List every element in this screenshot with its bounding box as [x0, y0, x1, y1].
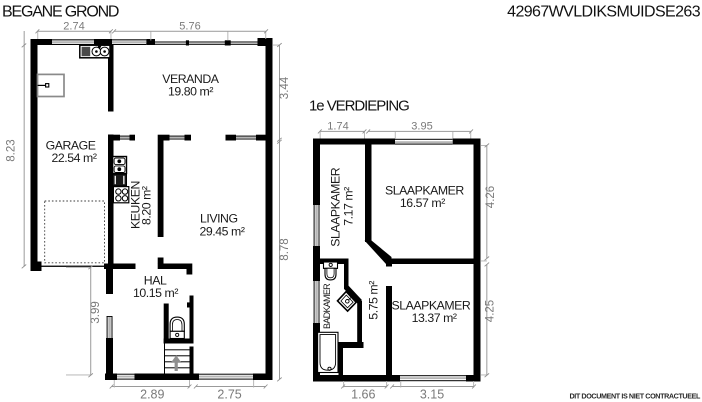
svg-text:BEGANE GROND: BEGANE GROND — [2, 3, 119, 20]
svg-text:8.20 m²: 8.20 m² — [140, 186, 154, 225]
svg-text:22.54 m²: 22.54 m² — [52, 151, 97, 165]
svg-text:5.76: 5.76 — [179, 20, 200, 32]
svg-text:1e VERDIEPING: 1e VERDIEPING — [309, 97, 409, 114]
svg-text:1.74: 1.74 — [327, 120, 348, 132]
svg-text:8.23: 8.23 — [6, 139, 18, 161]
svg-text:3.44: 3.44 — [279, 76, 291, 99]
svg-text:19.80 m²: 19.80 m² — [168, 85, 213, 99]
svg-text:2.75: 2.75 — [217, 387, 241, 401]
svg-text:1.66: 1.66 — [351, 387, 375, 401]
svg-text:13.37 m²: 13.37 m² — [412, 311, 457, 325]
svg-text:29.45 m²: 29.45 m² — [200, 224, 245, 238]
svg-text:3.15: 3.15 — [420, 387, 444, 401]
svg-text:BADKAMER: BADKAMER — [322, 283, 332, 329]
svg-text:4.26: 4.26 — [485, 186, 497, 208]
svg-text:LIVING: LIVING — [200, 211, 238, 225]
svg-text:4.25: 4.25 — [485, 300, 497, 322]
svg-text:8.78: 8.78 — [279, 238, 291, 260]
svg-text:7.17 m²: 7.17 m² — [341, 187, 355, 226]
svg-text:5.75 m²: 5.75 m² — [367, 281, 381, 320]
svg-text:10.15 m²: 10.15 m² — [133, 286, 178, 300]
svg-text:3.99: 3.99 — [90, 301, 102, 323]
svg-text:42967WVLDIKSMUIDSE263: 42967WVLDIKSMUIDSE263 — [507, 4, 701, 21]
svg-text:3.95: 3.95 — [411, 120, 432, 132]
svg-text:2.89: 2.89 — [140, 387, 164, 401]
svg-text:2.74: 2.74 — [63, 20, 84, 32]
svg-text:DIT DOCUMENT IS NIET CONTRACTU: DIT DOCUMENT IS NIET CONTRACTUEEL — [569, 391, 701, 400]
svg-text:SLAAPKAMER: SLAAPKAMER — [328, 167, 342, 246]
svg-text:16.57 m²: 16.57 m² — [400, 196, 445, 210]
